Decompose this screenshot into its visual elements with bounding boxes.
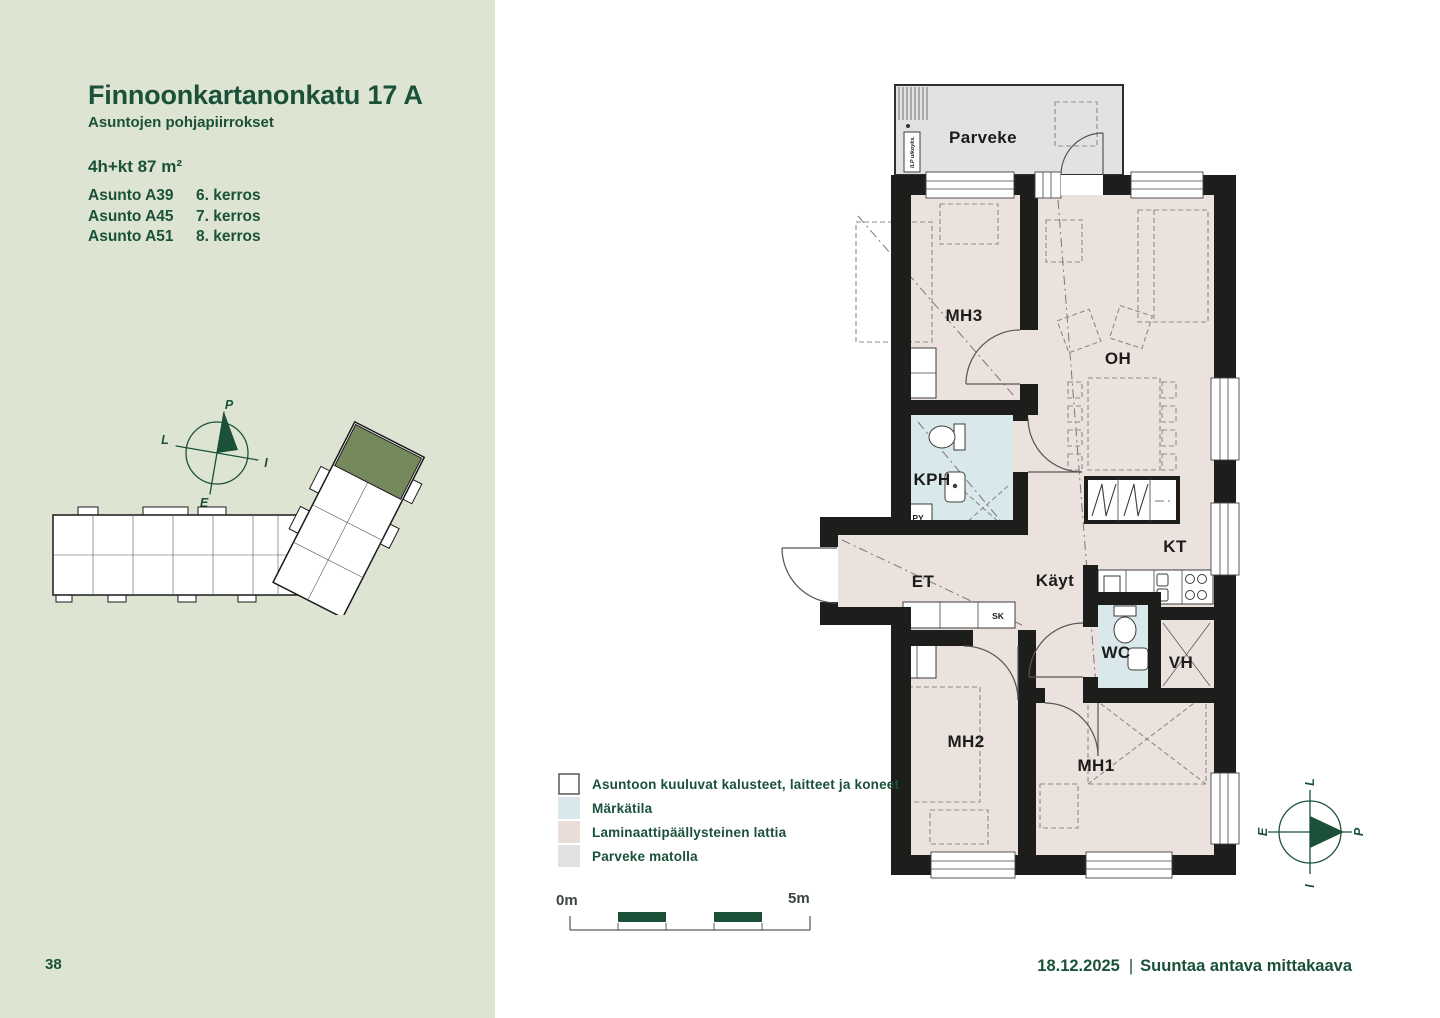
- page-subtitle: Asuntojen pohjapiirrokset: [88, 114, 274, 131]
- legend-label: Laminaattipäällysteinen lattia: [592, 825, 786, 840]
- legend-label: Märkätila: [592, 801, 652, 816]
- room-label-vh: VH: [1169, 653, 1193, 672]
- page-title: Finnoonkartanonkatu 17 A: [88, 80, 423, 111]
- compass-west: L: [161, 433, 169, 447]
- legend-item: Parveke matolla: [558, 844, 899, 868]
- room-label-kayt: Käyt: [1036, 571, 1074, 590]
- legend-item: Laminaattipäällysteinen lattia: [558, 820, 899, 844]
- apartment-floor: 7. kerros: [196, 207, 261, 228]
- compass-north: P: [1352, 827, 1366, 836]
- legend-label: Parveke matolla: [592, 849, 698, 864]
- room-label-kt: KT: [1163, 537, 1187, 556]
- footer: 18.12.2025 | Suuntaa antava mittakaava: [1037, 957, 1352, 976]
- footer-separator: |: [1120, 957, 1140, 976]
- room-label-mh1: MH1: [1077, 756, 1114, 775]
- page-number: 38: [45, 956, 62, 973]
- sk-label: SK: [992, 611, 1005, 621]
- room-label-wc: WC: [1101, 643, 1130, 662]
- room-label-mh3: MH3: [945, 306, 982, 325]
- legend-item: Märkätila: [558, 796, 899, 820]
- apartment-row: Asunto A39 6. kerros: [88, 186, 261, 207]
- legend: Asuntoon kuuluvat kalusteet, laitteet ja…: [558, 772, 899, 868]
- ilp-outdoor-label: ILP ulkoyks.: [910, 136, 916, 168]
- compass-east: I: [1303, 884, 1317, 888]
- apartment-row: Asunto A51 8. kerros: [88, 227, 261, 248]
- compass-south: E: [1256, 827, 1270, 836]
- scale-end-label: 5m: [788, 890, 810, 907]
- room-label-oh: OH: [1105, 349, 1131, 368]
- sidebar: Finnoonkartanonkatu 17 A Asuntojen pohja…: [0, 0, 495, 1018]
- room-label-kph: KPH: [913, 470, 950, 489]
- keyplan: P L I E: [48, 400, 468, 615]
- legend-item: Asuntoon kuuluvat kalusteet, laitteet ja…: [558, 772, 899, 796]
- room-label-mh2: MH2: [947, 732, 984, 751]
- unit-type: 4h+kt 87 m²: [88, 157, 182, 177]
- brochure-page: { "sidebar": { "title": "Finnoonkartanon…: [0, 0, 1440, 1018]
- legend-swatch-balcony: [558, 845, 580, 867]
- legend-swatch-laminate: [558, 821, 580, 843]
- scale-start-label: 0m: [556, 892, 578, 909]
- room-label-parveke: Parveke: [949, 128, 1017, 147]
- footer-date: 18.12.2025: [1037, 957, 1120, 976]
- apartment-name: Asunto A45: [88, 207, 196, 228]
- legend-label: Asuntoon kuuluvat kalusteet, laitteet ja…: [592, 777, 899, 792]
- compass-icon: P L I E: [161, 400, 268, 510]
- floorplan: ILP ulkoyks. ILP sisäyks.: [758, 82, 1248, 882]
- legend-swatch-furniture: [558, 773, 580, 795]
- footer-note: Suuntaa antava mittakaava: [1140, 957, 1352, 976]
- compass-north: P: [225, 400, 234, 412]
- apartment-row: Asunto A45 7. kerros: [88, 207, 261, 228]
- apartment-name: Asunto A39: [88, 186, 196, 207]
- scale-bar: 0m 5m: [548, 886, 828, 941]
- apartment-floor: 8. kerros: [196, 227, 261, 248]
- compass-west: L: [1303, 778, 1317, 786]
- apartment-name: Asunto A51: [88, 227, 196, 248]
- compass-east: I: [264, 456, 268, 470]
- plan-compass-icon: L P I E: [1255, 768, 1405, 908]
- keyplan-building: [53, 417, 433, 615]
- legend-swatch-wet-room: [558, 797, 580, 819]
- apartment-floor: 6. kerros: [196, 186, 261, 207]
- apartment-list: Asunto A39 6. kerros Asunto A45 7. kerro…: [88, 186, 261, 248]
- room-label-et: ET: [912, 572, 935, 591]
